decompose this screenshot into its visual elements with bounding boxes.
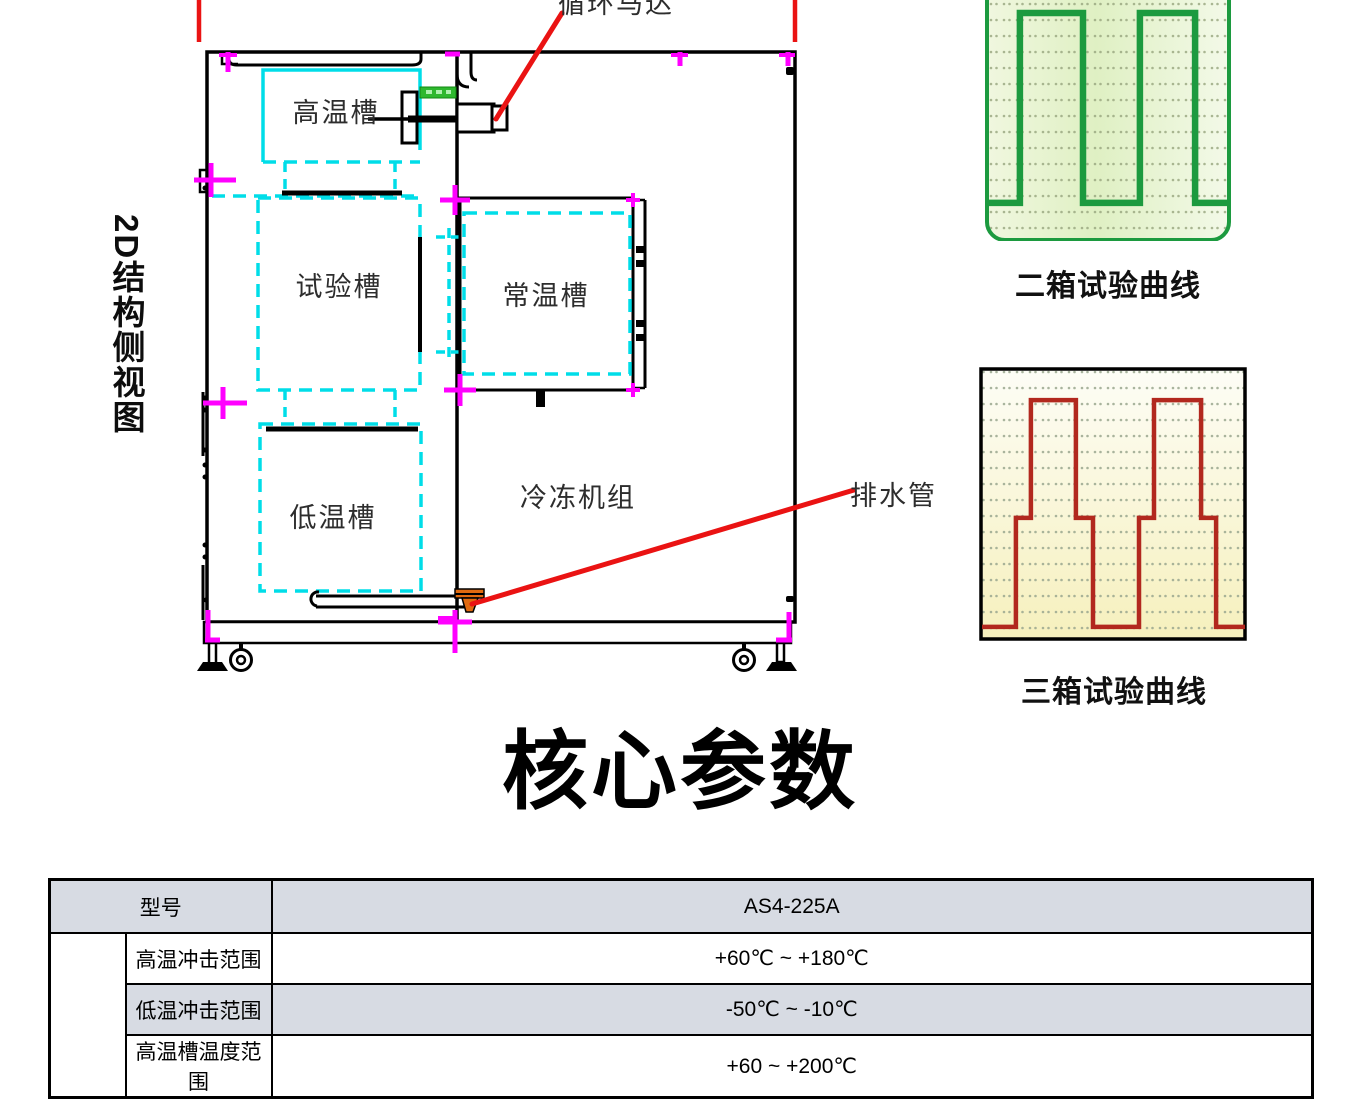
three-box-curve-chart	[979, 367, 1249, 641]
registration-marks	[194, 52, 795, 653]
spec-label-cell: 高温槽温度范围	[126, 1035, 272, 1098]
spec-table: 型号 AS4-225A 高温冲击范围 +60℃ ~ +180℃ 低温冲击范围 -…	[48, 878, 1314, 1099]
model-value-cell: AS4-225A	[272, 880, 1313, 934]
leveling-feet-and-casters	[197, 643, 797, 671]
spec-label-cell: 高温冲击范围	[126, 933, 272, 984]
spec-table-header-row: 型号 AS4-225A	[50, 880, 1313, 934]
table-row: 低温冲击范围 -50℃ ~ -10℃	[50, 984, 1313, 1035]
category-spanner-cell	[50, 933, 126, 1098]
section-title: 核心参数	[0, 727, 1360, 817]
product-spec-page: { "diagram": { "side_label": "2D结构侧视图", …	[0, 0, 1360, 1057]
motor-leader-line	[496, 13, 562, 119]
spec-label-cell: 低温冲击范围	[126, 984, 272, 1035]
spec-value-cell: +60℃ ~ +180℃	[272, 933, 1313, 984]
label-test-tank: 试验槽	[296, 272, 383, 302]
two-box-curve-caption: 二箱试验曲线	[985, 261, 1231, 305]
two-box-curve-chart	[985, 0, 1231, 241]
cabinet-outline	[204, 52, 795, 643]
motor-body	[457, 104, 494, 132]
spec-value-cell: -50℃ ~ -10℃	[272, 984, 1313, 1035]
label-refrigeration-unit: 冷冻机组	[520, 483, 636, 513]
label-circulation-motor: 循环马达	[558, 0, 674, 19]
three-box-curve-caption: 三箱试验曲线	[979, 667, 1249, 711]
label-drain-pipe: 排水管	[850, 481, 937, 511]
three-box-chart-dot-grid	[981, 369, 1245, 639]
table-row: 高温槽温度范围 +60 ~ +200℃	[50, 1035, 1313, 1098]
low-temp-chamber	[260, 390, 421, 591]
label-ambient-tank: 常温槽	[503, 281, 590, 311]
spec-value-cell: +60 ~ +200℃	[272, 1035, 1313, 1098]
label-low-temp-tank: 低温槽	[290, 503, 377, 533]
table-row: 高温冲击范围 +60℃ ~ +180℃	[50, 933, 1313, 984]
label-high-temp-tank: 高温槽	[293, 98, 380, 128]
model-header-cell: 型号	[50, 880, 272, 934]
structure-diagram: 循环马达 高温槽 试验槽 常温槽 低温槽 冷冻机组 排水管	[0, 0, 960, 710]
high-temp-chamber	[212, 70, 420, 196]
